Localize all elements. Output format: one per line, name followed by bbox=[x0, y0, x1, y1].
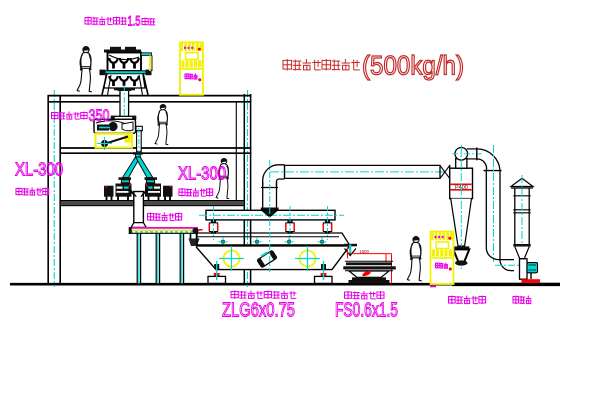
svg-text:FS0.6x1.5: FS0.6x1.5 bbox=[335, 300, 398, 322]
svg-text:ZLG6x0.75: ZLG6x0.75 bbox=[222, 300, 295, 322]
svg-text:XL-300: XL-300 bbox=[178, 164, 226, 184]
svg-text:350: 350 bbox=[89, 106, 110, 125]
svg-text:1.5: 1.5 bbox=[128, 13, 141, 29]
svg-text:1500: 1500 bbox=[360, 249, 370, 254]
svg-text:(500kg/h): (500kg/h) bbox=[362, 51, 464, 81]
svg-text:XL-300: XL-300 bbox=[15, 160, 63, 180]
